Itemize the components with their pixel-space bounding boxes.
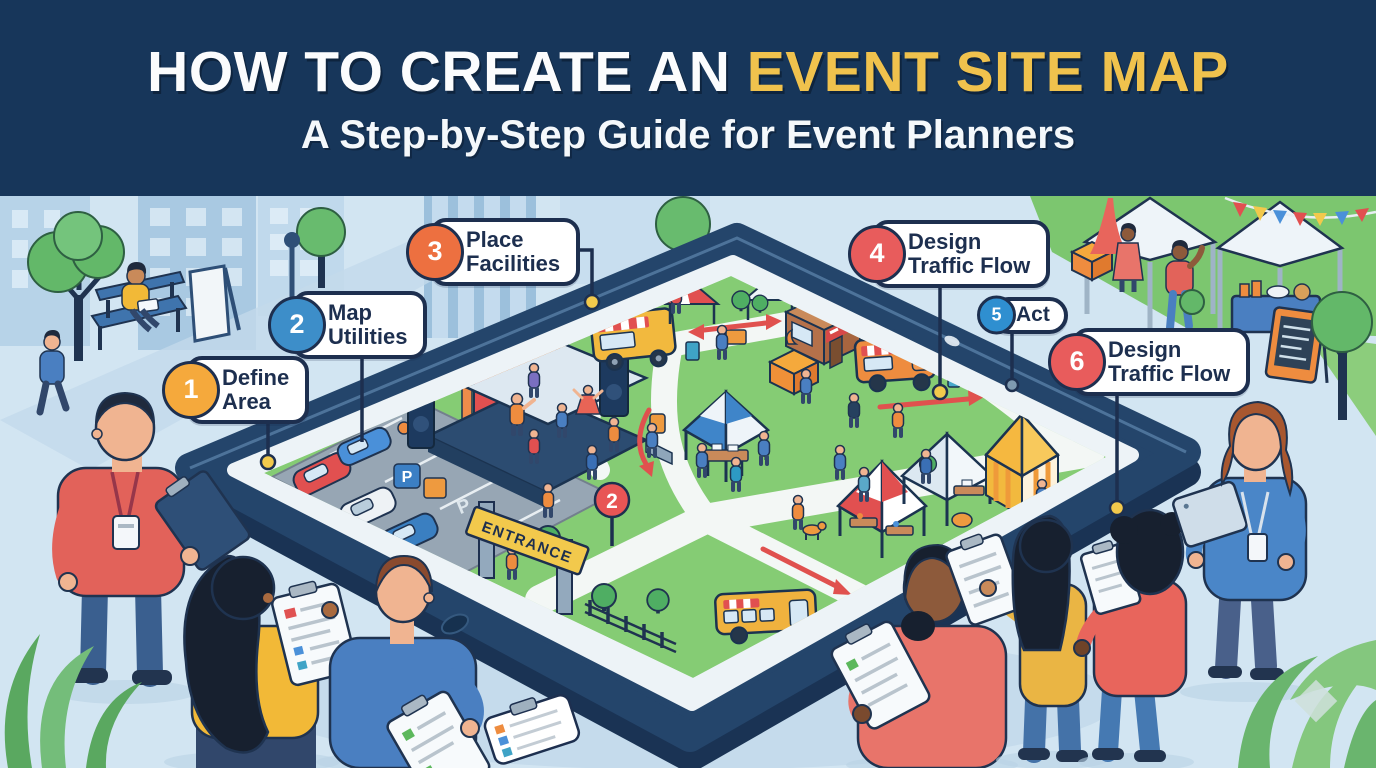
connector-dot-3	[585, 295, 599, 309]
step-callout-6: 6 Design Traffic Flow	[1072, 328, 1250, 396]
step-number: 3	[406, 223, 464, 281]
page-subtitle: A Step-by-Step Guide for Event Planners	[301, 113, 1075, 158]
step-callout-1: 1 Define Area	[186, 356, 309, 424]
step-number: 4	[848, 225, 906, 283]
step-callout-5: 5 Act	[990, 297, 1068, 334]
step-label: Define Area	[222, 366, 289, 414]
connector-dot-1	[261, 455, 275, 469]
step-label: Design Traffic Flow	[1108, 338, 1230, 386]
step-number: 5	[977, 296, 1016, 335]
parking-sign-orange	[424, 478, 446, 498]
step-callout-2: 2 Map Utilities	[292, 291, 427, 359]
step-label: Design Traffic Flow	[908, 230, 1030, 278]
header-banner: HOW TO CREATE AN EVENT SITE MAP A Step-b…	[0, 0, 1376, 196]
title-highlight: EVENT SITE MAP	[747, 40, 1229, 104]
step-number: 1	[162, 361, 220, 419]
parking-letter: P	[402, 469, 413, 486]
title-prefix: HOW TO CREATE AN	[147, 40, 747, 104]
connector-dot-4	[933, 385, 947, 399]
step-label: Act	[1016, 304, 1050, 327]
connector-dot-6	[1110, 501, 1124, 515]
parking-sign-blue: P	[394, 464, 420, 488]
step-callout-3: 3 Place Facilities	[430, 218, 580, 286]
connector-dot-5	[1006, 379, 1018, 391]
bush	[1180, 290, 1204, 314]
route-marker-label: 2	[606, 490, 618, 513]
step-number: 2	[268, 296, 326, 354]
step-label: Place Facilities	[466, 228, 560, 276]
page-title: HOW TO CREATE AN EVENT SITE MAP	[147, 39, 1229, 105]
infographic-poster: P P	[0, 0, 1376, 768]
step-callout-4: 4 Design Traffic Flow	[872, 220, 1050, 288]
step-number: 6	[1048, 333, 1106, 391]
step-label: Map Utilities	[328, 301, 407, 349]
